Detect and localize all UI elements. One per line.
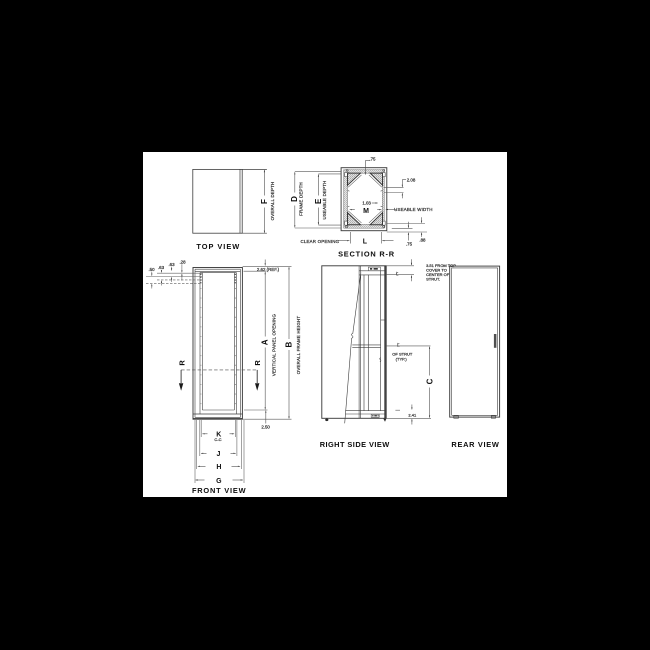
- svg-text:C: C: [425, 378, 434, 384]
- svg-text:.28: .28: [179, 260, 186, 265]
- svg-text:OVERALL DEPTH: OVERALL DEPTH: [270, 182, 275, 221]
- svg-text:REAR VIEW: REAR VIEW: [451, 440, 499, 449]
- svg-text:.63: .63: [168, 262, 175, 267]
- svg-text:F: F: [260, 199, 269, 204]
- svg-text:H: H: [216, 464, 221, 471]
- svg-text:(TYP.): (TYP.): [396, 357, 408, 362]
- svg-text:R: R: [253, 360, 262, 366]
- svg-text:.75: .75: [406, 241, 413, 246]
- svg-text:VERTICAL PANEL OPENING: VERTICAL PANEL OPENING: [272, 314, 277, 377]
- svg-text:M: M: [363, 208, 369, 215]
- svg-text:J: J: [217, 451, 221, 458]
- svg-text:A: A: [261, 339, 270, 345]
- svg-text:2.50: 2.50: [261, 425, 270, 430]
- svg-text:B: B: [285, 341, 294, 347]
- svg-text:R: R: [177, 360, 186, 366]
- svg-text:STRUT.: STRUT.: [426, 277, 440, 282]
- svg-text:L: L: [363, 238, 368, 245]
- svg-text:TOP VIEW: TOP VIEW: [196, 242, 240, 251]
- svg-text:USEABLE DEPTH: USEABLE DEPTH: [322, 181, 327, 220]
- svg-text:USEABLE WIDTH: USEABLE WIDTH: [394, 207, 432, 212]
- svg-text:FRAME DEPTH: FRAME DEPTH: [298, 182, 303, 216]
- svg-text:OVERALL FRAME HEIGHT: OVERALL FRAME HEIGHT: [296, 316, 301, 375]
- svg-text:C-C: C-C: [214, 437, 221, 442]
- svg-text:RIGHT SIDE VIEW: RIGHT SIDE VIEW: [320, 440, 390, 449]
- svg-text:SECTION R-R: SECTION R-R: [338, 249, 395, 258]
- svg-text:CLEAR OPENING: CLEAR OPENING: [301, 239, 340, 244]
- svg-text:2.41: 2.41: [408, 412, 417, 417]
- svg-text:2.08: 2.08: [407, 178, 416, 183]
- svg-text:.63: .63: [158, 265, 165, 270]
- svg-text:1.03: 1.03: [362, 200, 371, 205]
- svg-text:.75: .75: [369, 156, 376, 161]
- svg-text:.50: .50: [148, 267, 155, 272]
- svg-text:.88: .88: [419, 238, 426, 243]
- svg-text:FRONT VIEW: FRONT VIEW: [192, 486, 246, 495]
- svg-text:G: G: [216, 478, 222, 485]
